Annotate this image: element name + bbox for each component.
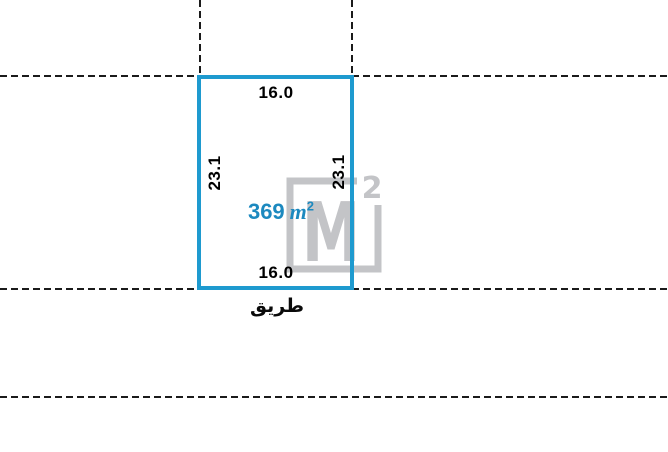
boundary-line-vertical-right	[351, 0, 353, 77]
dimension-bottom-width: 16.0	[258, 263, 293, 283]
dimension-top-width: 16.0	[258, 83, 293, 103]
area-value: 369	[248, 199, 285, 224]
plot-area-label: 369m2	[248, 199, 314, 225]
dimension-left-depth: 23.1	[205, 155, 225, 190]
road-label: طريق	[250, 295, 304, 317]
area-unit: m	[290, 199, 307, 224]
watermark-exponent: 2	[362, 174, 383, 206]
dimension-right-depth: 23.1	[329, 154, 349, 189]
boundary-line-bottom	[0, 396, 668, 398]
land-plot-diagram: M 2 16.0 16.0 23.1 23.1 369m2 طريق	[0, 0, 668, 452]
boundary-line-vertical-left	[199, 0, 201, 77]
area-exponent: 2	[307, 199, 314, 214]
